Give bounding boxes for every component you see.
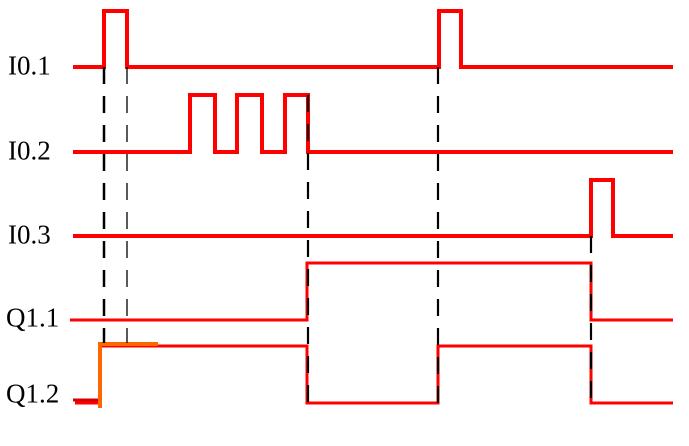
signal-label-i0-1: I0.1	[8, 53, 51, 80]
signal-label-i0-2: I0.2	[8, 138, 51, 165]
waveform-canvas	[0, 0, 689, 446]
trace-q1-2	[75, 346, 673, 403]
signal-label-q1-2: Q1.2	[6, 381, 59, 408]
trace-i0-2	[73, 95, 673, 152]
q12-set-highlight	[100, 344, 158, 408]
trace-i0-1	[73, 11, 673, 67]
timing-diagram: I0.1 I0.2 I0.3 Q1.1 Q1.2	[0, 0, 689, 446]
trace-i0-3	[73, 180, 673, 236]
signal-label-q1-1: Q1.1	[6, 305, 59, 332]
trace-q1-1	[70, 263, 673, 320]
signal-label-i0-3: I0.3	[8, 222, 51, 249]
